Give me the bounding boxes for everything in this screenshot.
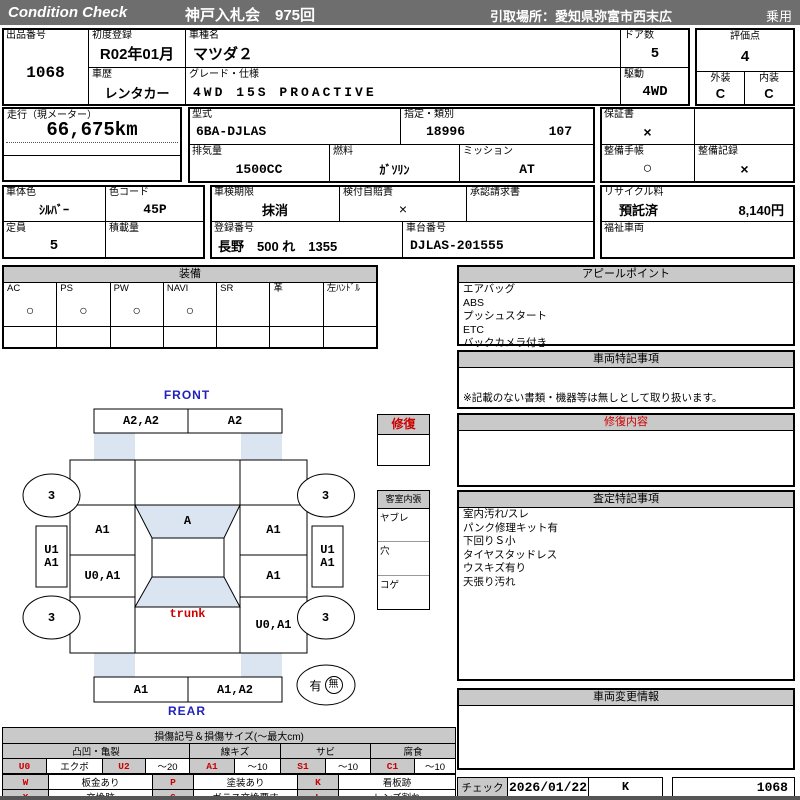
right-side-code-bottom: A1 (320, 557, 334, 570)
top-bar: Condition Check 神戸入札会 975回 引取場所：愛知県弥富市西末… (0, 0, 800, 25)
mileage-box: 走行（現メーター） 66,675km (2, 107, 182, 182)
maintenance-book-mark: ○ (601, 156, 694, 182)
repair-detail-title: 修復内容 (459, 415, 793, 431)
model-name-cell: 車種名 マツダ２ (185, 28, 621, 68)
front-fender-right-code: A1 (240, 505, 307, 555)
repair-mini-title: 修復 (378, 415, 429, 435)
interior-value: C (745, 83, 793, 104)
history-cell: 車歴 レンタカー (88, 67, 186, 106)
legend-title: 損傷記号＆損傷サイズ(～最大cm) (3, 728, 456, 744)
brand-logo: Condition Check (8, 4, 127, 21)
chassis-value: DJLAS-201555 (403, 233, 594, 258)
front-label: FRONT (147, 388, 227, 401)
left-side-codes: U1 A1 (36, 526, 67, 587)
assessment-title: 査定特記事項 (459, 492, 793, 508)
front-pillar-shade-left (94, 433, 135, 460)
rear-bumper-right-code: A1,A2 (188, 678, 282, 701)
page-bottom-rule (0, 796, 800, 800)
legend-code: K (298, 775, 339, 790)
body-color-cell: 車体色 ｼﾙﾊﾞｰ (2, 185, 106, 222)
presence-no-circle: 無 (325, 676, 343, 694)
vehicle-category: 乗用 (766, 6, 792, 25)
check-label: チェック (457, 777, 508, 797)
displacement-value: 1500CC (189, 156, 329, 182)
plate-value: 長野 500 れ 1355 (211, 233, 402, 258)
windshield-code: A (135, 505, 240, 537)
door-left-code: U0,A1 (70, 555, 135, 597)
front-bumper-right-code: A2 (188, 410, 282, 432)
equipment-empty-cell (111, 326, 164, 347)
sr-mark (217, 294, 269, 326)
lhd-mark (324, 294, 376, 326)
legend-group-dent: 凸凹・亀裂 (3, 744, 190, 759)
capacity-cell: 定員 5 (2, 221, 106, 259)
load-label: 積載量 (109, 223, 139, 234)
assessment-item: パンク修理キット有 (463, 522, 791, 536)
rear-pillar-shade-left (94, 653, 135, 677)
front-bumper-left-code: A2,A2 (94, 410, 188, 432)
vehicle-notes-panel: 車両特記事項 ※記載のない書類・機器等は無しとして取り扱います。 (457, 350, 795, 409)
roof-shape (152, 538, 224, 577)
appeal-item: バックカメラ付き (463, 337, 791, 351)
color-code-value: 45P (106, 197, 204, 221)
equipment-cell-navi: NAVI ○ (164, 282, 217, 326)
doors-cell: ドア数 5 (620, 28, 690, 68)
auction-title: 神戸入札会 975回 (185, 4, 315, 25)
assessment-item: タイヤスタッドレス (463, 549, 791, 563)
welfare-label: 福祉車両 (604, 223, 644, 234)
interior-cell: 内装 C (745, 71, 793, 104)
ps-label: PS (60, 283, 73, 294)
insurance-cell: 検付自賠責 × (339, 185, 467, 222)
door-right-code: A1 (240, 555, 307, 597)
presence-yes-label: 有 (309, 677, 321, 694)
lhd-label: 左ﾊﾝﾄﾞﾙ (327, 283, 360, 294)
assessment-items: 室内汚れ/スレ パンク修理キット有 下回りＳ小 タイヤスタッドレス ウスキズ有り… (463, 508, 791, 589)
ac-mark: ○ (4, 294, 56, 326)
legend-desc: 板金あり (49, 775, 153, 790)
legend-code: S1 (281, 759, 326, 774)
assessment-item: 天張り汚れ (463, 576, 791, 590)
score-value: 4 (697, 41, 793, 71)
first-registration-cell: 初度登録 R02年01月 (88, 28, 186, 68)
insurance-mark: × (340, 197, 466, 221)
leather-mark (270, 294, 322, 326)
change-info-panel: 車両変更情報 (457, 688, 795, 770)
left-side-code-bottom: A1 (44, 557, 58, 570)
legend-desc: 塗装あり (194, 775, 298, 790)
model-code-value: 6BA-DJLAS (189, 119, 400, 144)
vehicle-notes-note: ※記載のない書類・機器等は無しとして取り扱います。 (463, 390, 722, 405)
equipment-cell-ps: PS ○ (57, 282, 110, 326)
assessment-item: 下回りＳ小 (463, 535, 791, 549)
cabin-item-burn: コゲ (378, 576, 429, 609)
body-color-value: ｼﾙﾊﾞｰ (3, 197, 105, 221)
repair-detail-panel: 修復内容 (457, 413, 795, 487)
appeal-item: ABS (463, 297, 791, 311)
check-inspector: K (588, 777, 663, 797)
inspection-cell: 車検期限 抹消 (210, 185, 340, 222)
equipment-cell-pw: PW ○ (111, 282, 164, 326)
warranty-extra-cell (694, 107, 795, 145)
legend-desc: ～10 (415, 759, 456, 774)
cabin-item-tear: ヤブレ (378, 509, 429, 542)
lot-number-value: 1068 (3, 40, 88, 105)
cabin-interior-box: 客室内張 ヤブレ 穴 コゲ (377, 490, 430, 610)
navi-mark: ○ (164, 294, 216, 326)
cabin-item-hole: 穴 (378, 542, 429, 576)
drive-cell: 駆動 4WD (620, 67, 690, 106)
equipment-empty-cell (164, 326, 217, 347)
appeal-items: エアバッグ ABS プッシュスタート ETC バックカメラ付き (463, 283, 791, 351)
equipment-empty-cell (270, 326, 323, 347)
score-box: 評価点 4 外装 C 内装 C (695, 28, 795, 106)
navi-label: NAVI (167, 283, 188, 294)
repair-mini-box: 修復 (377, 414, 430, 466)
chassis-cell: 車台番号 DJLAS-201555 (402, 221, 595, 259)
model-code-cell: 型式 6BA-DJLAS (188, 107, 401, 145)
exterior-cell: 外装 C (697, 71, 745, 104)
right-side-code-top: U1 (320, 544, 334, 557)
appeal-title: アピールポイント (459, 267, 793, 283)
legend-desc: ～10 (235, 759, 281, 774)
equipment-empty-cell (4, 326, 57, 347)
front-pillar-shade-right (241, 433, 282, 460)
drive-value: 4WD (621, 79, 689, 105)
legend-code: C1 (371, 759, 415, 774)
mileage-dotted-rule (6, 142, 178, 143)
load-cell: 積載量 (105, 221, 205, 259)
legend-group-scratch: 線キズ (190, 744, 281, 759)
vehicle-notes-title: 車両特記事項 (459, 352, 793, 368)
maintenance-record-mark: × (695, 156, 794, 182)
legend-desc: ～20 (146, 759, 190, 774)
equipment-empty-cell (57, 326, 110, 347)
rear-fender-right-code: U0,A1 (240, 597, 307, 653)
appeal-panel: アピールポイント エアバッグ ABS プッシュスタート ETC バックカメラ付き (457, 265, 795, 346)
legend-group-rust: サビ (281, 744, 371, 759)
assessment-item: ウスキズ有り (463, 562, 791, 576)
legend-code: W (3, 775, 49, 790)
plate-cell: 登録番号 長野 500 れ 1355 (210, 221, 403, 259)
equipment-table: 装備 AC ○ PS ○ PW ○ NAVI ○ SR 革 (2, 265, 378, 349)
wheel-rear-left-code: 3 (23, 597, 80, 639)
class-values: 18996 107 (401, 119, 594, 144)
pickup-location: 引取場所：愛知県弥富市西末広 (490, 6, 672, 25)
transmission-cell: ミッション AT (459, 144, 595, 183)
warranty-cell: 保証書 × (600, 107, 695, 145)
trunk-label: trunk (135, 600, 240, 628)
legend-code: A1 (190, 759, 235, 774)
legend-code: U2 (103, 759, 146, 774)
check-lot-number: 1068 (672, 777, 795, 797)
auction-condition-sheet: Condition Check 神戸入札会 975回 引取場所：愛知県弥富市西末… (0, 0, 800, 800)
legend-desc: エクボ (47, 759, 103, 774)
front-fender-left-code: A1 (70, 505, 135, 555)
appeal-item: プッシュスタート (463, 310, 791, 324)
equipment-cell-ac: AC ○ (4, 282, 57, 326)
equipment-cell-sr: SR (217, 282, 270, 326)
maintenance-record-cell: 整備記録 × (694, 144, 795, 183)
grade-cell: グレード・仕様 4WD 15S PROACTIVE (185, 67, 621, 106)
class-value-1: 18996 (426, 124, 465, 139)
assessment-panel: 査定特記事項 室内汚れ/スレ パンク修理キット有 下回りＳ小 タイヤスタッドレス… (457, 490, 795, 681)
rear-label: REAR (147, 704, 227, 717)
sr-label: SR (220, 283, 233, 294)
fuel-cell: 燃料 ｶﾞｿﾘﾝ (329, 144, 460, 183)
recycle-fee: 8,140円 (738, 200, 784, 219)
check-date: 2026/01/22 (507, 777, 589, 797)
legend-code: U0 (3, 759, 47, 774)
legend-desc: ～10 (326, 759, 371, 774)
recycle-values: 預託済 8,140円 (601, 197, 794, 221)
assessment-item: 室内汚れ/スレ (463, 508, 791, 522)
welfare-cell: 福祉車両 (600, 221, 795, 259)
equipment-cell-leather: 革 (270, 282, 323, 326)
first-registration-value: R02年01月 (89, 40, 185, 67)
legend-code: P (153, 775, 194, 790)
equipment-title: 装備 (4, 267, 376, 283)
lot-number-cell: 出品番号 1068 (2, 28, 89, 106)
pw-mark: ○ (111, 294, 163, 326)
approval-cell: 承認請求書 (466, 185, 595, 222)
legend-desc: 看板跡 (339, 775, 456, 790)
color-code-cell: 色コード 45P (105, 185, 205, 222)
fuel-value: ｶﾞｿﾘﾝ (330, 156, 459, 182)
equipment-empty-cell (217, 326, 270, 347)
rear-pillar-shade-right (241, 653, 282, 677)
right-side-codes: U1 A1 (312, 526, 343, 587)
ac-label: AC (7, 283, 20, 294)
inspection-value: 抹消 (211, 197, 339, 221)
recycle-status: 預託済 (619, 200, 658, 219)
mileage-value: 66,675km (4, 118, 180, 142)
change-info-title: 車両変更情報 (459, 690, 793, 706)
warranty-mark: × (601, 119, 694, 144)
exterior-value: C (697, 83, 744, 104)
leather-label: 革 (273, 283, 283, 294)
legend-group-corrosion: 腐食 (371, 744, 456, 759)
ps-mark: ○ (57, 294, 109, 326)
maintenance-book-cell: 整備手帳 ○ (600, 144, 695, 183)
transmission-value: AT (460, 156, 594, 182)
presence-indicator: 有 無 (300, 669, 352, 701)
approval-label: 承認請求書 (470, 187, 520, 198)
equipment-empty-cell (324, 326, 376, 347)
capacity-value: 5 (3, 233, 105, 258)
appeal-item: エアバッグ (463, 283, 791, 297)
model-name-value: マツダ２ (186, 40, 620, 67)
cabin-interior-title: 客室内張 (378, 491, 429, 509)
displacement-cell: 排気量 1500CC (188, 144, 330, 183)
rear-bumper-left-code: A1 (94, 678, 188, 701)
equipment-cell-lhd: 左ﾊﾝﾄﾞﾙ (324, 282, 376, 326)
appeal-item: ETC (463, 324, 791, 338)
class-value-2: 107 (549, 124, 572, 139)
left-side-code-top: U1 (44, 544, 58, 557)
pw-label: PW (114, 283, 129, 294)
doors-value: 5 (621, 40, 689, 67)
grade-value: 4WD 15S PROACTIVE (186, 79, 620, 105)
recycle-cell: リサイクル料 預託済 8,140円 (600, 185, 795, 222)
mileage-solid-rule (4, 155, 180, 156)
class-cell: 指定・類別 18996 107 (400, 107, 595, 145)
history-value: レンタカー (89, 79, 185, 105)
